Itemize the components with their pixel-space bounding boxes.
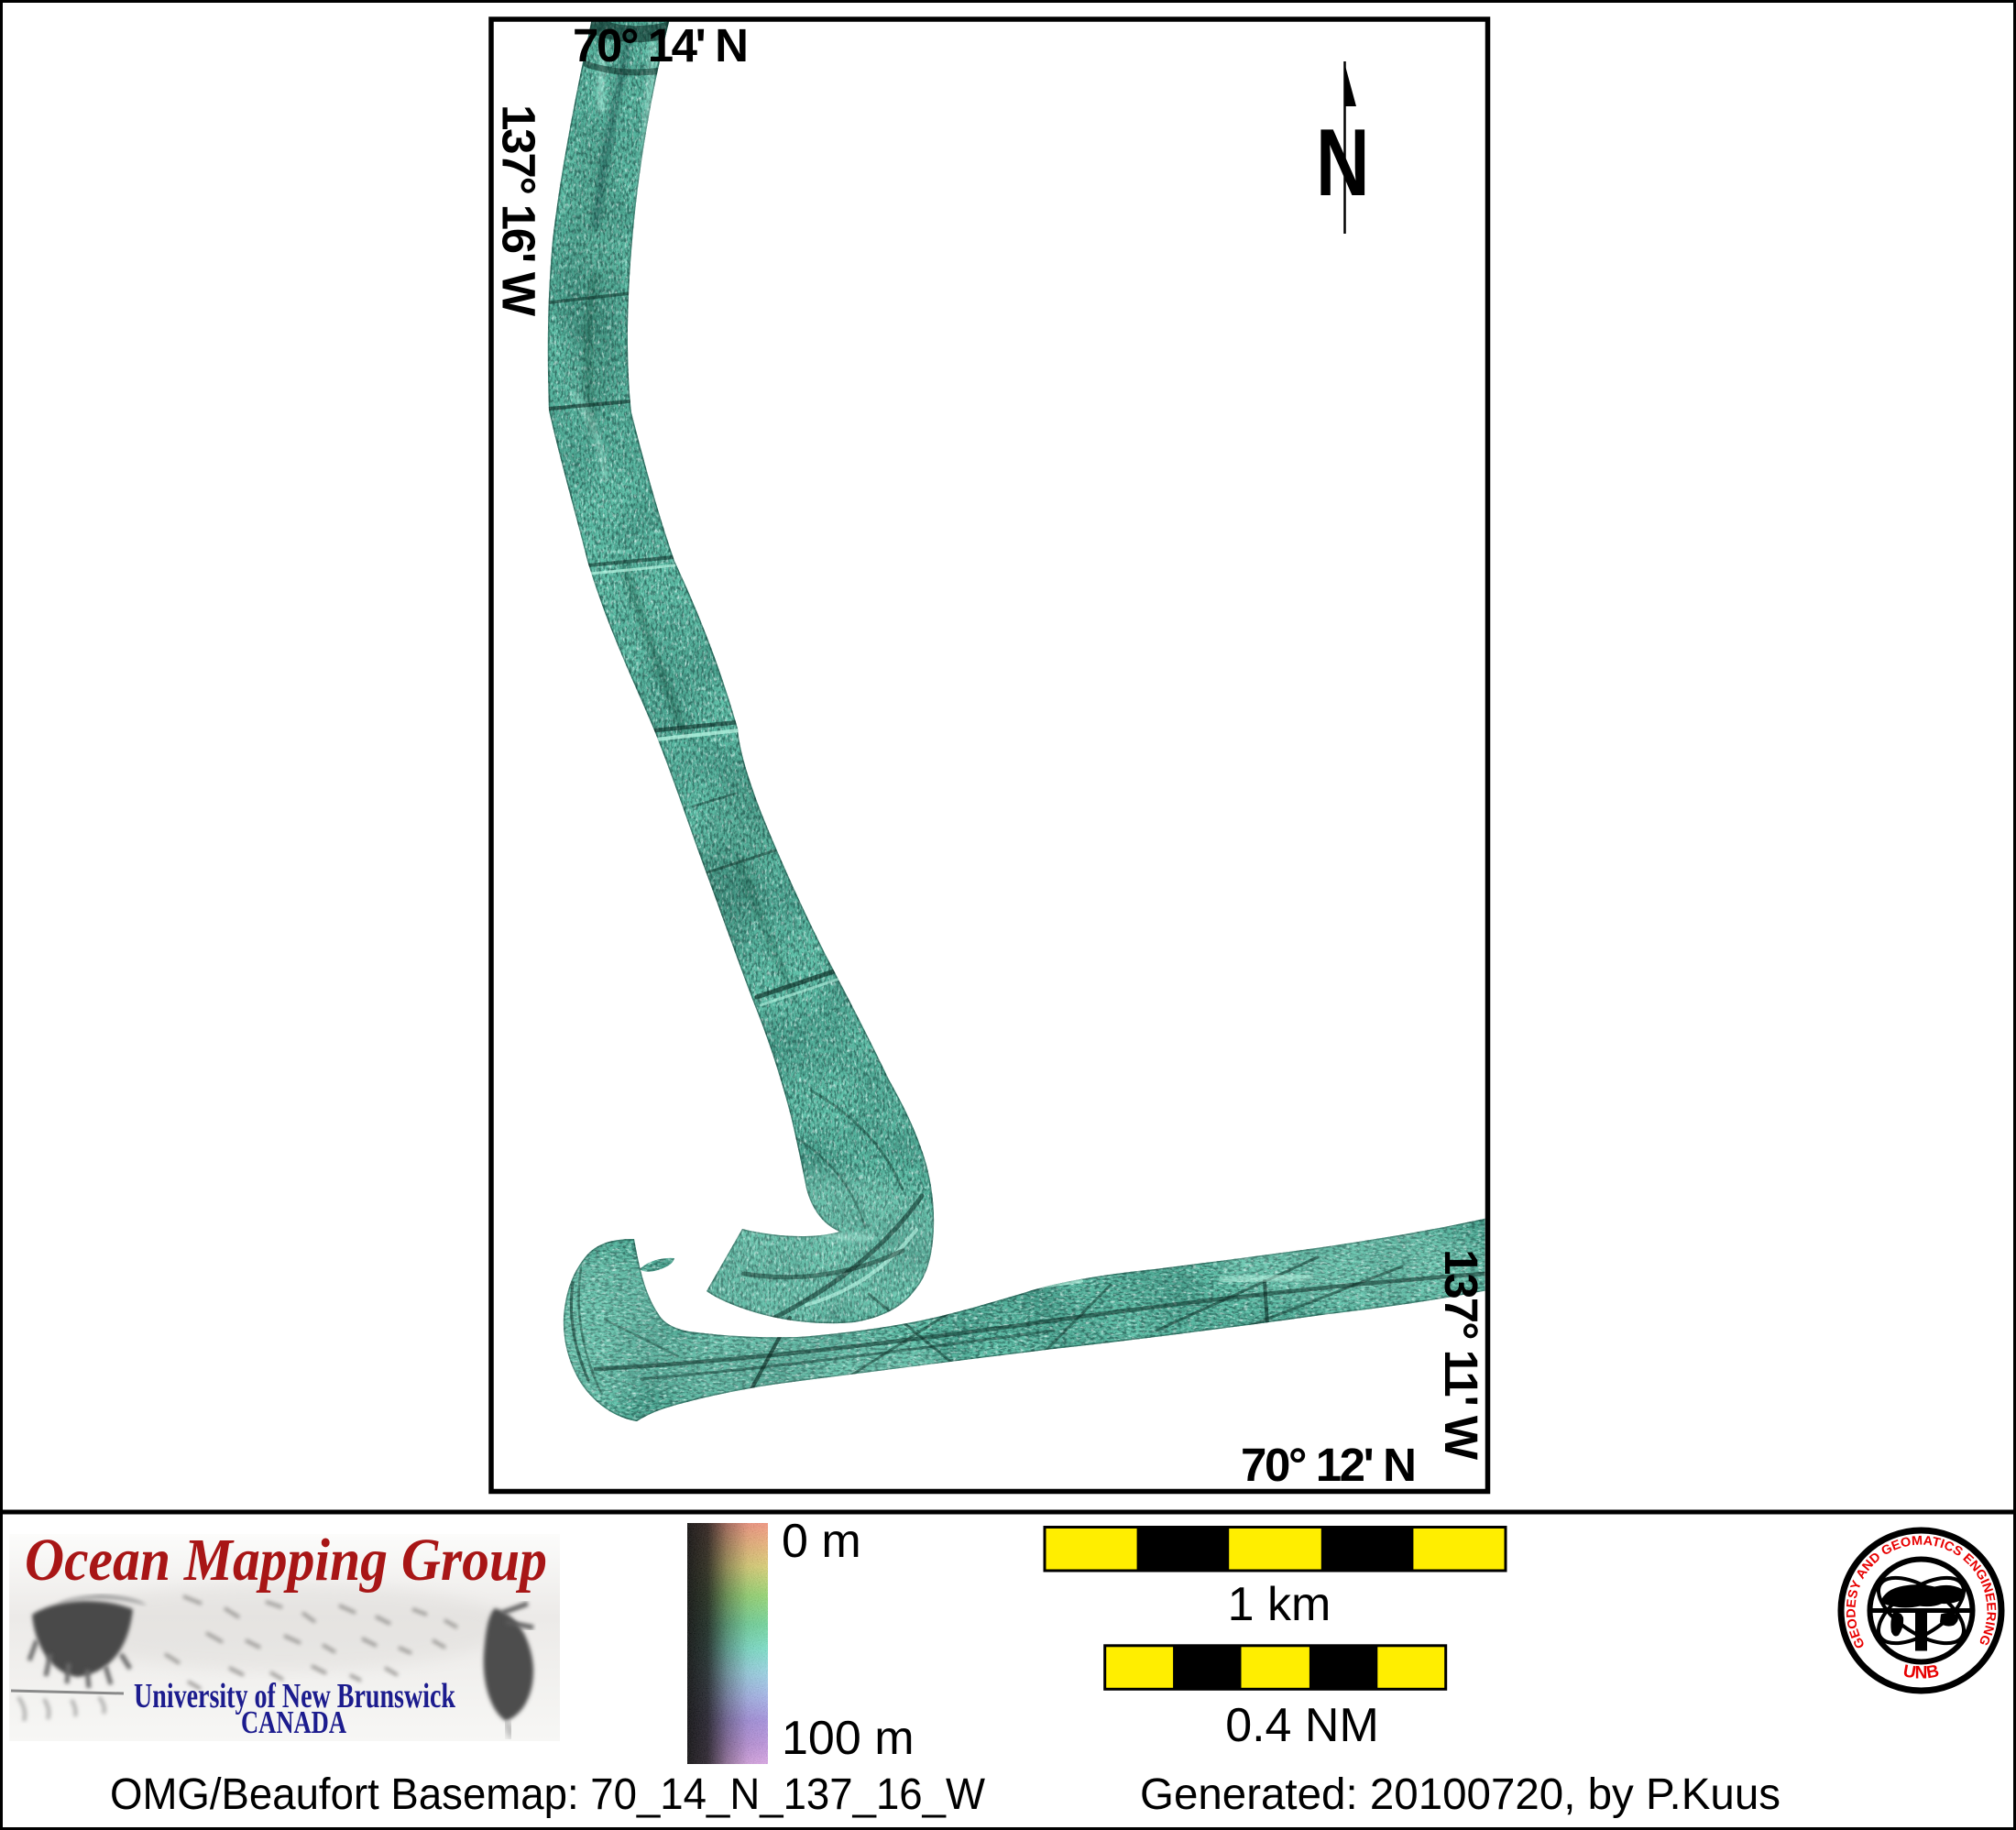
svg-text:Ocean Mapping Group: Ocean Mapping Group	[25, 1527, 547, 1594]
svg-text:1 km: 1 km	[1228, 1578, 1331, 1631]
svg-text:0.4 NM: 0.4 NM	[1225, 1699, 1379, 1752]
svg-text:100 m: 100 m	[782, 1712, 915, 1765]
svg-text:OMG/Beaufort Basemap: 70_14_N_: OMG/Beaufort Basemap: 70_14_N_137_16_W	[110, 1770, 986, 1819]
svg-text:137° 11' W: 137° 11' W	[1435, 1249, 1487, 1461]
svg-text:137° 16' W: 137° 16' W	[493, 104, 545, 317]
svg-text:CANADA: CANADA	[241, 1704, 347, 1740]
svg-text:70° 14' N: 70° 14' N	[573, 19, 749, 71]
svg-text:0 m: 0 m	[782, 1515, 861, 1568]
svg-text:N: N	[1316, 109, 1370, 215]
svg-text:70° 12' N: 70° 12' N	[1241, 1439, 1417, 1491]
svg-text:Generated: 20100720, by P.Kuus: Generated: 20100720, by P.Kuus	[1140, 1770, 1780, 1819]
svg-text:UNB: UNB	[1901, 1661, 1941, 1682]
